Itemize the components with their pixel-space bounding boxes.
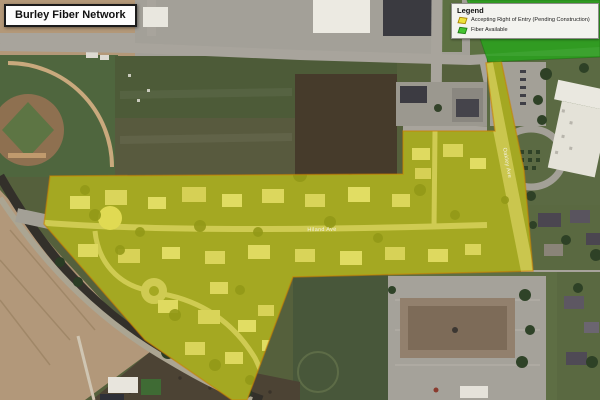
- sports-field: [115, 56, 397, 186]
- legend-item-label: Accepting Right of Entry (Pending Constr…: [471, 17, 590, 24]
- church-block: [293, 272, 600, 400]
- fiber-region-swatch-icon: [457, 26, 468, 35]
- satellite-map[interactable]: Hiland Ave Oakley Ave: [0, 0, 600, 400]
- legend-title: Legend: [457, 6, 594, 15]
- legend-item-accepting: Accepting Right of Entry (Pending Constr…: [457, 16, 594, 25]
- accepting-region-swatch-icon: [457, 16, 468, 25]
- map-title: Burley Fiber Network: [4, 4, 137, 27]
- campus-buildings: [396, 82, 488, 126]
- legend: Legend Accepting Right of Entry (Pending…: [451, 3, 599, 39]
- map-app-window: Hiland Ave Oakley Ave Burley Fiber Netwo…: [0, 0, 600, 400]
- legend-item-label: Fiber Available: [471, 27, 508, 34]
- baseball-field: [0, 52, 118, 177]
- legend-item-fiber: Fiber Available: [457, 26, 594, 35]
- east-houses: [524, 205, 600, 270]
- street-label-hiland-ave: Hiland Ave: [307, 227, 336, 234]
